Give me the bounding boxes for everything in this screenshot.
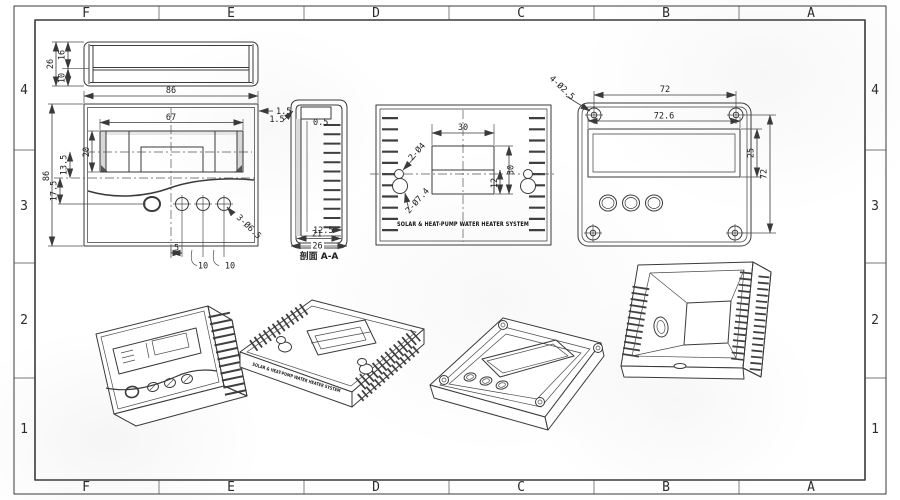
dim-text: 10 bbox=[225, 262, 235, 272]
engineering-drawing: F E D C B A F E D C B A 4 3 2 1 4 3 2 1 bbox=[0, 0, 900, 500]
dim-text: 12 bbox=[490, 178, 500, 188]
dim-text: 2-Ø7.4 bbox=[403, 186, 432, 216]
dim-text: 26 bbox=[46, 59, 56, 69]
drawing-sheet: F E D C B A F E D C B A 4 3 2 1 4 3 2 1 bbox=[0, 0, 900, 500]
dim-text: 13.5 bbox=[60, 155, 70, 175]
power-button bbox=[144, 197, 160, 211]
screw-hole bbox=[584, 224, 602, 242]
dim-text: 21 bbox=[312, 230, 322, 240]
grid-row-label: 2 bbox=[20, 313, 28, 328]
grid-col-label: B bbox=[662, 6, 670, 21]
dim-text: 10 bbox=[198, 262, 208, 272]
dim-text: 3-Ø6.5 bbox=[234, 212, 264, 241]
iso-front-view bbox=[96, 306, 247, 426]
display-window bbox=[588, 129, 740, 177]
keyhole-slot bbox=[393, 170, 408, 194]
grid-col-label: A bbox=[807, 480, 815, 495]
dim-text: 30 bbox=[458, 123, 468, 133]
grid-row-label: 1 bbox=[20, 422, 28, 437]
dim-text: 72.6 bbox=[654, 112, 674, 122]
round-button bbox=[194, 195, 212, 213]
dim-text: 0.5 bbox=[313, 118, 328, 128]
iso-inside-view bbox=[430, 318, 604, 430]
dim-text: 4-Ø2.5 bbox=[547, 73, 577, 102]
dim-text: 5 bbox=[174, 244, 179, 254]
screw-hole bbox=[726, 224, 744, 242]
cable-opening bbox=[684, 301, 731, 345]
grid-row-label: 4 bbox=[871, 83, 879, 98]
dim-text: 17.5 bbox=[50, 181, 60, 201]
dim-text: 16 bbox=[58, 50, 68, 60]
grid-col-label: D bbox=[372, 6, 380, 21]
dim-text: 20 bbox=[82, 147, 92, 157]
product-title: SOLAR & HEAT-PUMP WATER HEATER SYSTEM bbox=[397, 221, 529, 228]
display-window bbox=[100, 131, 243, 172]
grid-row-label: 3 bbox=[20, 199, 28, 214]
dim-text: 1.5 bbox=[269, 115, 284, 125]
snap-tab bbox=[674, 364, 686, 369]
dim-text: 2-Ø4 bbox=[406, 140, 428, 163]
dim-text: 30 bbox=[507, 165, 517, 175]
iso-back-view: SOLAR & HEAT-PUMP WATER HEATER SYSTEM bbox=[240, 300, 424, 407]
dim-text: 72 bbox=[660, 85, 670, 95]
grid-col-label: F bbox=[82, 6, 90, 21]
grid-col-label: E bbox=[227, 480, 235, 495]
section-label: 剖面 A-A bbox=[300, 250, 339, 262]
round-button bbox=[623, 195, 640, 211]
round-button bbox=[646, 195, 663, 211]
front-buttons bbox=[144, 195, 233, 213]
grid-col-label: C bbox=[517, 6, 525, 21]
section-view-aa: 1.5 0.5 12.5 21 26 剖面 A-A bbox=[269, 100, 347, 262]
front-view: 86 bbox=[42, 86, 291, 272]
top-view: 26 16 10 bbox=[46, 42, 258, 86]
dim-text: 72 bbox=[760, 169, 770, 179]
grid-col-label: A bbox=[807, 6, 815, 21]
rear-view: 30 30 12 2-Ø4 2-Ø7.4 SOLAR & HEAT-PUMP W… bbox=[370, 105, 556, 245]
dim-text: 10 bbox=[58, 73, 68, 83]
iso-back-tilt-view bbox=[621, 262, 771, 379]
grid-col-label: D bbox=[372, 480, 380, 495]
grid-row-label: 2 bbox=[871, 313, 879, 328]
mounting-view: 72 72.6 25 72 4-Ø2.5 bbox=[547, 73, 776, 246]
dim-text: 86 bbox=[166, 86, 176, 96]
round-button bbox=[600, 195, 617, 211]
grid-col-label: F bbox=[82, 480, 90, 495]
dim-text: 67 bbox=[166, 113, 176, 123]
dim-text: 25 bbox=[747, 148, 757, 158]
grid-col-label: E bbox=[227, 6, 235, 21]
dim-text: 26 bbox=[312, 242, 322, 252]
dim-text: 86 bbox=[42, 171, 52, 181]
grid-col-label: C bbox=[517, 480, 525, 495]
grid-col-label: B bbox=[662, 480, 670, 495]
round-button bbox=[173, 195, 191, 213]
grid-row-label: 4 bbox=[20, 83, 28, 98]
grid-row-label: 3 bbox=[871, 199, 879, 214]
grid-row-label: 1 bbox=[871, 422, 879, 437]
